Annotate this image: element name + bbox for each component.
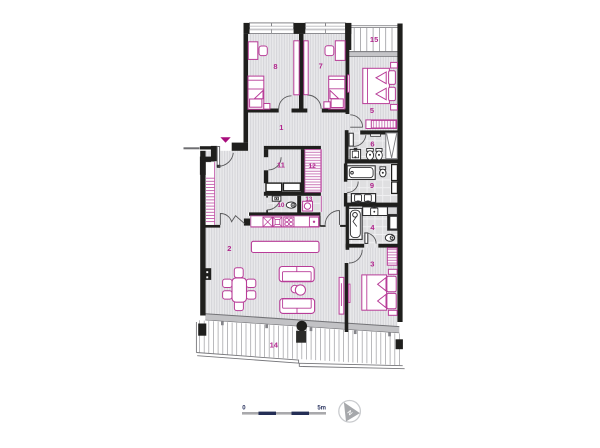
svg-text:13: 13 xyxy=(305,196,313,203)
svg-text:14: 14 xyxy=(270,340,279,349)
svg-text:5m: 5m xyxy=(317,406,326,412)
svg-text:5: 5 xyxy=(370,106,374,115)
svg-text:2: 2 xyxy=(227,244,231,253)
svg-text:9: 9 xyxy=(370,181,374,190)
svg-text:12: 12 xyxy=(309,163,317,170)
svg-text:15: 15 xyxy=(370,35,378,44)
svg-text:7: 7 xyxy=(319,62,323,71)
svg-text:6: 6 xyxy=(370,140,374,149)
svg-text:10: 10 xyxy=(277,202,285,209)
svg-text:1: 1 xyxy=(279,123,283,132)
svg-text:11: 11 xyxy=(277,161,285,170)
svg-text:3: 3 xyxy=(370,260,374,269)
svg-text:8: 8 xyxy=(273,62,277,71)
